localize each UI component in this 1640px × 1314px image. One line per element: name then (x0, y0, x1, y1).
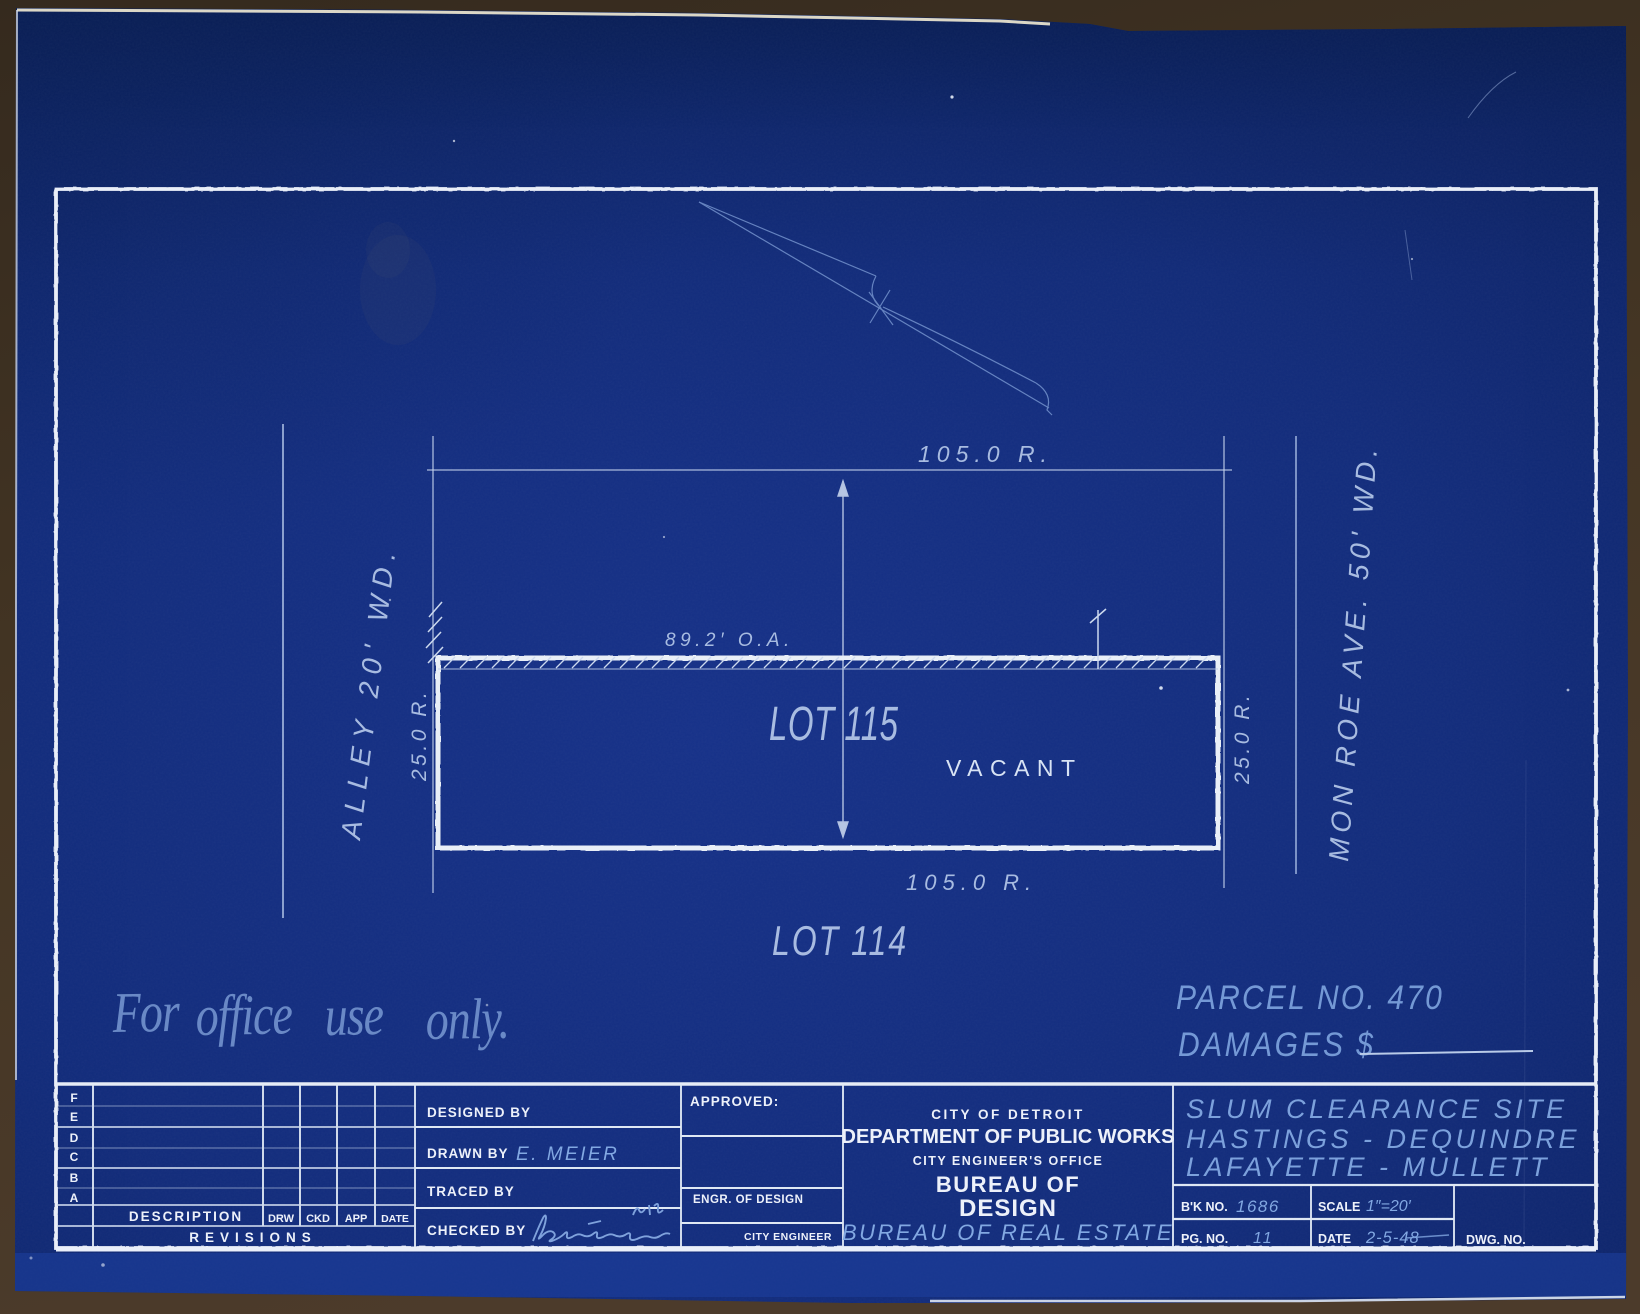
svg-text:25.0 R.: 25.0 R. (1231, 692, 1254, 785)
svg-text:BUREAU OF REAL ESTATE: BUREAU OF REAL ESTATE (842, 1220, 1174, 1245)
svg-text:B: B (70, 1171, 79, 1185)
svg-text:25.0 R.: 25.0 R. (408, 689, 431, 782)
svg-text:F: F (70, 1091, 77, 1105)
svg-text:E: E (70, 1110, 78, 1124)
svg-text:DESCRIPTION: DESCRIPTION (129, 1209, 243, 1224)
svg-text:LOT 114: LOT 114 (772, 917, 908, 964)
svg-text:DESIGN: DESIGN (959, 1195, 1057, 1222)
svg-text:1686: 1686 (1236, 1197, 1280, 1216)
svg-text:APP: APP (345, 1213, 368, 1225)
svg-text:TRACED BY: TRACED BY (427, 1184, 515, 1199)
svg-text:B'K NO.: B'K NO. (1181, 1200, 1228, 1214)
svg-text:105.0 R.: 105.0 R. (906, 870, 1037, 895)
svg-text:APPROVED:: APPROVED: (690, 1094, 779, 1109)
svg-text:ENGR. OF DESIGN: ENGR. OF DESIGN (693, 1194, 803, 1206)
svg-text:LAFAYETTE - MULLETT: LAFAYETTE - MULLETT (1186, 1152, 1550, 1182)
svg-text:VACANT: VACANT (946, 755, 1083, 781)
svg-text:C: C (70, 1150, 79, 1164)
svg-text:DEPARTMENT OF PUBLIC WORKS: DEPARTMENT OF PUBLIC WORKS (842, 1126, 1175, 1148)
svg-text:DATE: DATE (1318, 1232, 1351, 1246)
svg-text:DRAWN BY: DRAWN BY (427, 1146, 509, 1161)
svg-text:DATE: DATE (381, 1213, 409, 1225)
svg-text:CITY ENGINEER: CITY ENGINEER (744, 1231, 832, 1243)
svg-text:DAMAGES $: DAMAGES $ (1178, 1025, 1375, 1063)
svg-text:REVISIONS: REVISIONS (189, 1230, 317, 1245)
svg-text:CHECKED BY: CHECKED BY (427, 1223, 526, 1238)
svg-text:PARCEL NO. 470: PARCEL NO. 470 (1176, 978, 1444, 1016)
svg-text:DESIGNED BY: DESIGNED BY (427, 1105, 531, 1120)
svg-text:For: For (111, 981, 181, 1045)
svg-text:office: office (195, 984, 292, 1049)
svg-text:only.: only. (425, 988, 509, 1052)
svg-text:CITY ENGINEER'S OFFICE: CITY ENGINEER'S OFFICE (913, 1154, 1104, 1168)
svg-text:SLUM CLEARANCE SITE: SLUM CLEARANCE SITE (1186, 1094, 1568, 1124)
svg-text:E. MEIER: E. MEIER (516, 1144, 619, 1165)
svg-text:use: use (324, 984, 383, 1048)
svg-text:1″=20′: 1″=20′ (1366, 1198, 1412, 1215)
svg-text:HASTINGS - DEQUINDRE: HASTINGS - DEQUINDRE (1186, 1124, 1580, 1154)
svg-text:SCALE: SCALE (1318, 1200, 1360, 1214)
svg-text:CKD: CKD (306, 1213, 330, 1225)
svg-text:DWG. NO.: DWG. NO. (1466, 1233, 1526, 1247)
svg-text:BUREAU OF: BUREAU OF (936, 1172, 1080, 1197)
svg-text:LOT 115: LOT 115 (769, 697, 898, 751)
svg-text:11: 11 (1253, 1230, 1274, 1247)
svg-text:D: D (70, 1131, 79, 1145)
svg-text:A: A (70, 1191, 79, 1205)
svg-text:DRW: DRW (268, 1213, 295, 1225)
svg-text:CITY OF DETROIT: CITY OF DETROIT (931, 1107, 1085, 1122)
svg-text:89.2′ O.A.: 89.2′ O.A. (665, 630, 794, 651)
svg-text:PG. NO.: PG. NO. (1181, 1232, 1228, 1246)
svg-text:105.0 R.: 105.0 R. (918, 441, 1053, 467)
